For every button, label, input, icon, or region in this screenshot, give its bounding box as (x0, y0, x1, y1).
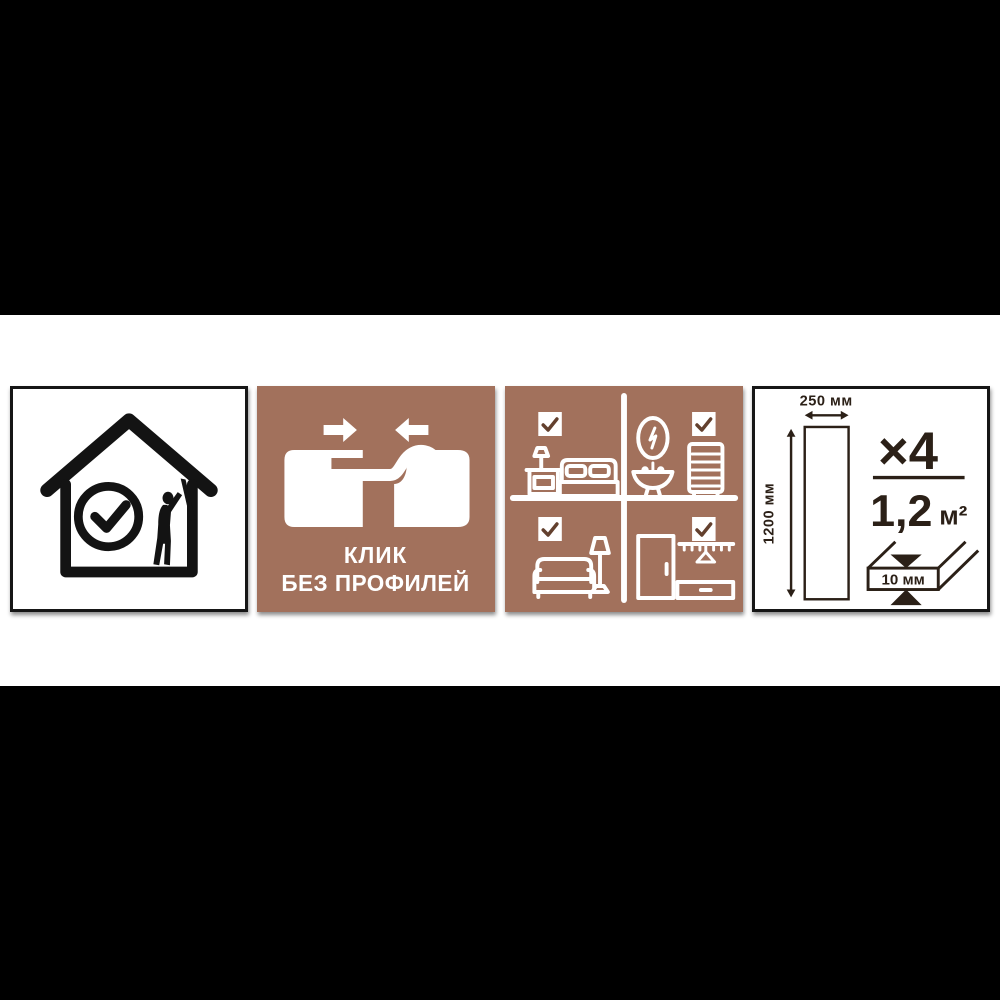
house-check-graphic (13, 389, 245, 609)
bedroom-icon (526, 448, 617, 496)
panel-click: КЛИК БЕЗ ПРОФИЛЕЙ (257, 386, 495, 612)
arrow-left-icon (395, 418, 428, 442)
checkbox-checked-icon (692, 517, 716, 541)
hallway-icon (638, 536, 733, 598)
area-label: 1,2м² (870, 486, 968, 536)
panel-quality (10, 386, 248, 612)
height-arrow (787, 429, 796, 597)
click-joint-icon (285, 418, 470, 527)
panel-outline (805, 427, 849, 599)
content-band: КЛИК БЕЗ ПРОФИЛЕЙ (0, 315, 1000, 686)
feature-panels: КЛИК БЕЗ ПРОФИЛЕЙ (0, 386, 1000, 612)
rooms-graphic (505, 386, 743, 612)
click-title-line1: КЛИК (344, 542, 407, 568)
click-graphic: КЛИК БЕЗ ПРОФИЛЕЙ (257, 386, 495, 612)
width-arrow (805, 411, 849, 420)
height-label: 1200 мм (761, 483, 777, 545)
dimensions-graphic: 250 мм 1200 мм ×4 1,2м² (755, 389, 987, 609)
click-title-line2: БЕЗ ПРОФИЛЕЙ (282, 570, 470, 596)
quantity-label: ×4 (878, 422, 938, 481)
checkbox-checked-icon (538, 412, 562, 436)
arrow-right-icon (324, 418, 357, 442)
checkbox-checked-icon (692, 412, 716, 436)
living-room-icon (534, 538, 608, 597)
width-label: 250 мм (800, 394, 853, 410)
thickness-diagram: 10 мм (868, 542, 978, 605)
panel-rooms (505, 386, 743, 612)
panel-dimensions: 250 мм 1200 мм ×4 1,2м² (752, 386, 990, 612)
thickness-label: 10 мм (881, 572, 924, 589)
checkbox-checked-icon (538, 517, 562, 541)
